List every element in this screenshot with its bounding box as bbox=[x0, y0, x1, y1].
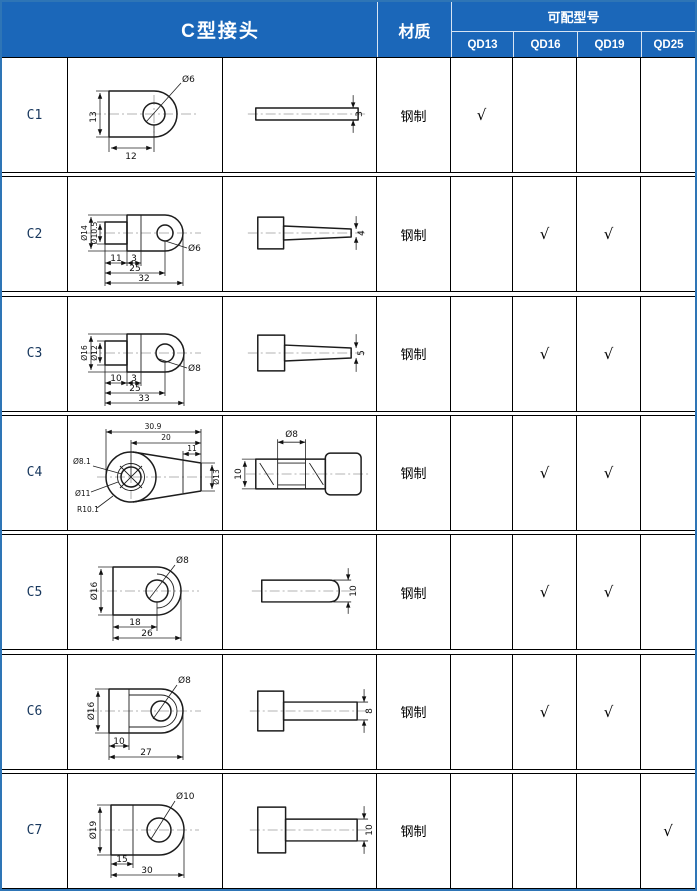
front-view-cell: Ø6 13 12 bbox=[68, 58, 223, 172]
technical-drawing-front: Ø8 Ø16 10 27 bbox=[69, 656, 222, 768]
row-id: C7 bbox=[2, 774, 68, 888]
dim-label: 5 bbox=[357, 350, 367, 356]
technical-drawing-front: Ø8 Ø16 Ø12 10 3 25 bbox=[69, 298, 222, 410]
front-view-cell: 30.9 20 11 Ø8.1 Ø11 R10.1 Ø13 bbox=[68, 416, 223, 530]
check-qd13 bbox=[451, 535, 513, 649]
dim-label: 32 bbox=[138, 274, 149, 284]
table-title: C型接头 bbox=[2, 2, 377, 57]
material-value: 钢制 bbox=[377, 774, 451, 888]
dim-label: 30 bbox=[141, 866, 153, 876]
material-value: 钢制 bbox=[377, 297, 451, 411]
dim-label: 26 bbox=[141, 629, 153, 639]
side-view-cell: 10 bbox=[223, 535, 377, 649]
table-row: C3 Ø8 Ø16 Ø12 bbox=[2, 296, 695, 412]
dim-label: 27 bbox=[140, 748, 151, 758]
technical-drawing-side: 4 bbox=[224, 178, 376, 290]
row-id: C3 bbox=[2, 297, 68, 411]
dim-label: 30.9 bbox=[144, 422, 161, 431]
table-row: C1 Ø6 13 12 bbox=[2, 57, 695, 173]
dim-label: 33 bbox=[138, 394, 149, 404]
dim-label: Ø6 bbox=[188, 243, 201, 254]
dim-label: 18 bbox=[129, 618, 141, 628]
check-qd16: √ bbox=[513, 655, 577, 769]
material-value: 钢制 bbox=[377, 535, 451, 649]
check-qd25 bbox=[641, 177, 695, 291]
dim-label: Ø12 bbox=[90, 345, 99, 361]
dim-label: 12 bbox=[125, 152, 136, 162]
dim-label: 10 bbox=[365, 824, 375, 836]
check-qd19: √ bbox=[577, 297, 641, 411]
technical-drawing-side: 5 bbox=[224, 298, 376, 410]
check-qd16: √ bbox=[513, 177, 577, 291]
side-view-cell: Ø8 10 bbox=[223, 416, 377, 530]
dim-label: 10 bbox=[110, 374, 122, 384]
dim-label: Ø16 bbox=[80, 345, 89, 361]
check-qd19: √ bbox=[577, 416, 641, 530]
model-column-qd25: QD25 bbox=[641, 31, 695, 57]
dim-label: 25 bbox=[129, 264, 140, 274]
dim-label: 10 bbox=[113, 737, 125, 747]
material-value: 钢制 bbox=[377, 655, 451, 769]
dim-label: 8 bbox=[365, 707, 375, 713]
dim-label: 4 bbox=[357, 230, 367, 236]
model-column-qd16: QD16 bbox=[513, 31, 577, 57]
front-view-cell: Ø10 Ø19 15 30 bbox=[68, 774, 223, 888]
dim-label: 3 bbox=[131, 374, 137, 384]
check-qd13: √ bbox=[451, 58, 513, 172]
technical-drawing-side: 10 bbox=[224, 536, 376, 648]
check-qd13 bbox=[451, 177, 513, 291]
dim-label: Ø10.5 bbox=[90, 222, 99, 245]
side-view-cell: 10 bbox=[223, 774, 377, 888]
front-view-cell: Ø8 Ø16 10 27 bbox=[68, 655, 223, 769]
check-qd13 bbox=[451, 297, 513, 411]
dim-label: Ø10 bbox=[176, 791, 195, 802]
dim-label: Ø16 bbox=[89, 582, 100, 601]
front-view-cell: Ø6 Ø14 Ø10.5 11 3 25 bbox=[68, 177, 223, 291]
table-row: C7 Ø10 Ø19 15 30 bbox=[2, 773, 695, 889]
compatible-models-header: 可配型号 bbox=[451, 2, 695, 31]
check-qd19: √ bbox=[577, 655, 641, 769]
material-column-header: 材质 bbox=[377, 2, 451, 57]
check-qd16 bbox=[513, 58, 577, 172]
material-value: 钢制 bbox=[377, 58, 451, 172]
dim-label: Ø13 bbox=[212, 469, 221, 485]
check-qd16: √ bbox=[513, 297, 577, 411]
dim-label: 11 bbox=[187, 444, 197, 453]
dim-label: 3 bbox=[131, 254, 137, 264]
row-id: C5 bbox=[2, 535, 68, 649]
dim-label: Ø16 bbox=[86, 701, 97, 720]
dim-label: 10 bbox=[233, 468, 243, 480]
table-row: C2 Ø6 Ø14 Ø10.5 bbox=[2, 176, 695, 292]
technical-drawing-side: 8 bbox=[224, 656, 376, 768]
technical-drawing-front: 30.9 20 11 Ø8.1 Ø11 R10.1 Ø13 bbox=[69, 417, 222, 529]
dim-label: 13 bbox=[89, 111, 99, 122]
check-qd16: √ bbox=[513, 535, 577, 649]
connector-spec-table: C型接头 材质 可配型号 QD13 QD16 QD19 QD25 C1 Ø6 1… bbox=[0, 0, 697, 891]
dim-label: 20 bbox=[161, 433, 171, 442]
row-id: C2 bbox=[2, 177, 68, 291]
check-qd16 bbox=[513, 774, 577, 888]
technical-drawing-side: 3 bbox=[224, 59, 376, 171]
check-qd13 bbox=[451, 774, 513, 888]
technical-drawing-front: Ø10 Ø19 15 30 bbox=[69, 775, 222, 887]
dim-label: 11 bbox=[110, 254, 121, 264]
check-qd16: √ bbox=[513, 416, 577, 530]
side-view-cell: 5 bbox=[223, 297, 377, 411]
dim-label: Ø8.1 bbox=[73, 457, 91, 466]
check-qd13 bbox=[451, 416, 513, 530]
dim-label: 3 bbox=[355, 111, 365, 117]
material-value: 钢制 bbox=[377, 177, 451, 291]
row-id: C6 bbox=[2, 655, 68, 769]
front-view-cell: Ø8 Ø16 Ø12 10 3 25 bbox=[68, 297, 223, 411]
dim-label: Ø8 bbox=[188, 363, 201, 374]
check-qd25 bbox=[641, 416, 695, 530]
side-view-cell: 8 bbox=[223, 655, 377, 769]
table-row: C6 Ø8 Ø16 10 bbox=[2, 654, 695, 770]
table-body: C1 Ø6 13 12 bbox=[2, 57, 695, 889]
check-qd25 bbox=[641, 655, 695, 769]
table-row: C5 Ø8 Ø16 18 26 bbox=[2, 534, 695, 650]
row-id: C4 bbox=[2, 416, 68, 530]
dim-label: 10 bbox=[349, 585, 359, 597]
table-row: C4 30.9 20 bbox=[2, 415, 695, 531]
technical-drawing-side: 10 bbox=[224, 775, 376, 887]
dim-label: Ø8 bbox=[178, 675, 191, 686]
check-qd25: √ bbox=[641, 774, 695, 888]
front-view-cell: Ø8 Ø16 18 26 bbox=[68, 535, 223, 649]
dim-label: Ø8 bbox=[285, 429, 298, 440]
dim-label: Ø6 bbox=[182, 74, 195, 85]
dim-label: Ø11 bbox=[75, 489, 91, 498]
dim-label: Ø8 bbox=[176, 555, 189, 566]
dim-label: Ø19 bbox=[88, 820, 99, 839]
side-view-cell: 3 bbox=[223, 58, 377, 172]
dim-label: 15 bbox=[116, 855, 127, 865]
check-qd25 bbox=[641, 58, 695, 172]
technical-drawing-front: Ø8 Ø16 18 26 bbox=[69, 536, 222, 648]
side-view-cell: 4 bbox=[223, 177, 377, 291]
check-qd19 bbox=[577, 774, 641, 888]
check-qd19: √ bbox=[577, 535, 641, 649]
dim-label: Ø14 bbox=[80, 225, 89, 241]
check-qd25 bbox=[641, 297, 695, 411]
row-id: C1 bbox=[2, 58, 68, 172]
check-qd19 bbox=[577, 58, 641, 172]
model-column-qd19: QD19 bbox=[577, 31, 641, 57]
dim-label: R10.1 bbox=[77, 505, 99, 514]
technical-drawing-side: Ø8 10 bbox=[224, 417, 376, 529]
check-qd25 bbox=[641, 535, 695, 649]
model-column-qd13: QD13 bbox=[451, 31, 513, 57]
check-qd13 bbox=[451, 655, 513, 769]
technical-drawing-front: Ø6 Ø14 Ø10.5 11 3 25 bbox=[69, 178, 222, 290]
table-header: C型接头 材质 可配型号 QD13 QD16 QD19 QD25 bbox=[2, 2, 695, 57]
dim-label: 25 bbox=[129, 384, 140, 394]
material-value: 钢制 bbox=[377, 416, 451, 530]
technical-drawing-front: Ø6 13 12 bbox=[69, 59, 222, 171]
check-qd19: √ bbox=[577, 177, 641, 291]
